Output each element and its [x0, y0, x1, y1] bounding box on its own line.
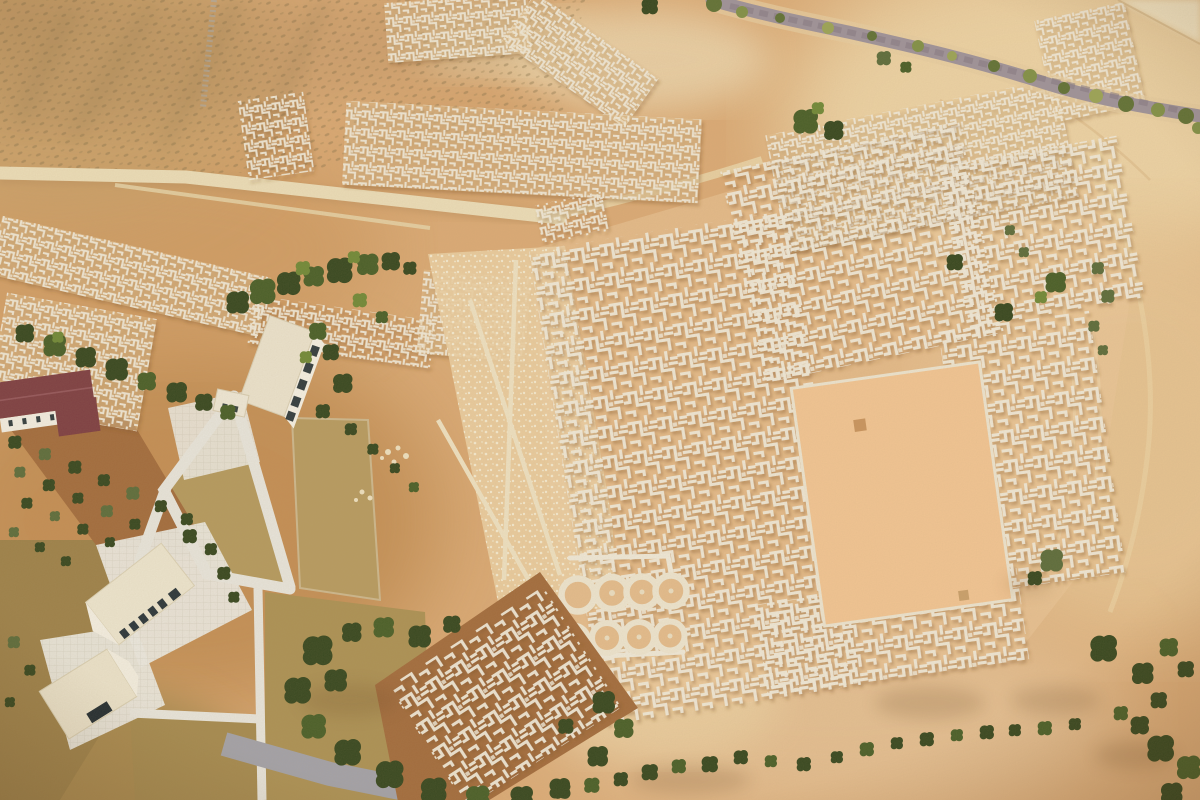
scene-canvas: [0, 0, 1200, 800]
knossos-model-photo: [0, 0, 1200, 800]
vignette: [0, 0, 1200, 800]
